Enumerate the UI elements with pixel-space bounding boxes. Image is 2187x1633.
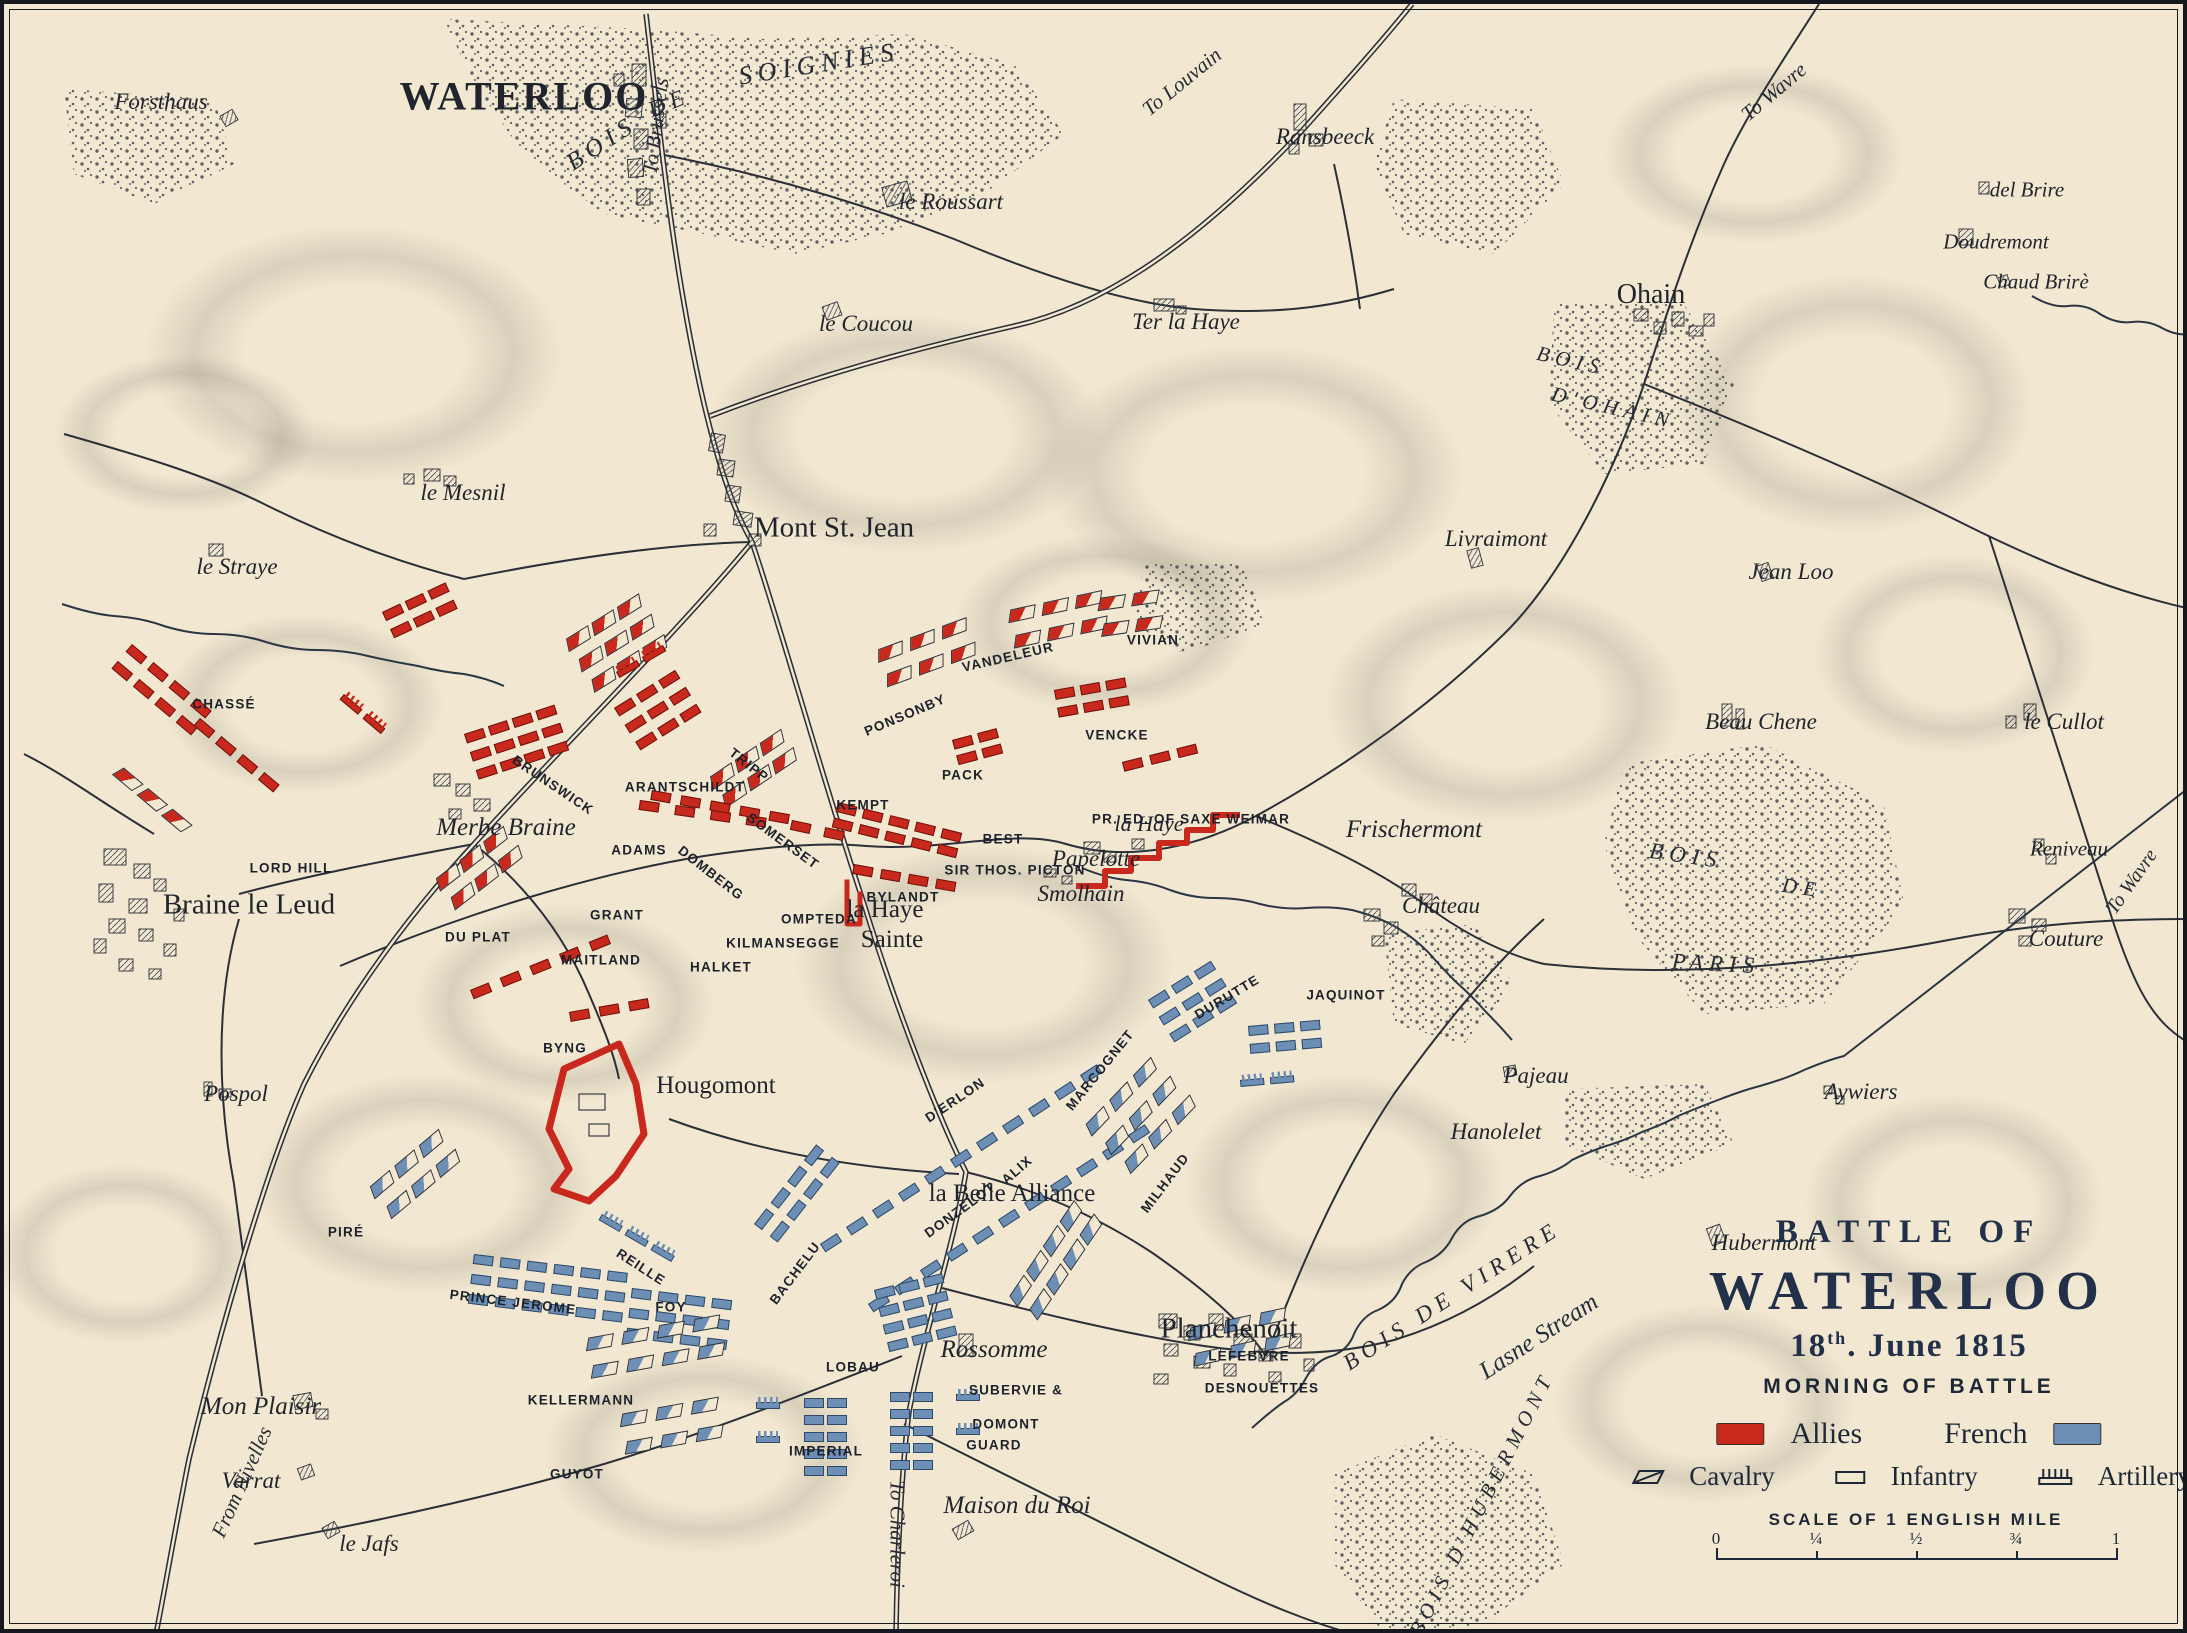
cavalry-icon: [1627, 1466, 1667, 1488]
allied-corps-label-sir-thos-picton: SIR THOS. PICTON: [944, 863, 1085, 878]
allies-color-swatch: [1717, 1423, 1765, 1445]
french-inf-unit: [804, 1398, 824, 1408]
french-corps-label-domont: DOMONT: [972, 1417, 1039, 1432]
french-inf-unit: [913, 1409, 933, 1419]
allied-corps-label-vencke: VENCKE: [1085, 728, 1148, 743]
allied-corps-label-kilmansegge: KILMANSEGGE: [726, 936, 840, 951]
place-label-maison-du-roi: Maison du Roi: [943, 1492, 1090, 1520]
allied-corps-label-maitland: MAITLAND: [561, 953, 641, 968]
scale-line: 0¼½¾1: [1716, 1536, 2116, 1566]
french-corps-label-imperial: IMPERIAL: [789, 1444, 863, 1459]
bois-d-hubermont-wood: [1334, 1434, 1564, 1633]
place-label-chaud-brir: Chaud Brirè: [1983, 270, 2089, 295]
map-subtitle: MORNING OF BATTLE: [1627, 1375, 2187, 1399]
french-inf-unit: [913, 1460, 933, 1470]
place-label-rossomme: Rossomme: [941, 1336, 1048, 1364]
allied-corps-label-bylandt: BYLANDT: [867, 890, 940, 905]
place-label-frischermont: Frischermont: [1346, 816, 1482, 844]
french-inf-unit: [890, 1409, 910, 1419]
french-art-unit: [756, 1402, 780, 1409]
infantry-label: Infantry: [1891, 1461, 1978, 1492]
place-label-pajeau: Pajeau: [1503, 1063, 1568, 1089]
french-corps-label-jaquinot: JAQUINOT: [1306, 988, 1385, 1003]
scale-tick-label: ¾: [2010, 1529, 2023, 1549]
title-block: BATTLE OF WATERLOO 18th. June 1815 MORNI…: [1627, 1214, 2187, 1492]
allied-corps-label-byng: BYNG: [543, 1041, 587, 1056]
place-label-le-jafs: le Jafs: [339, 1531, 398, 1557]
french-inf-unit: [827, 1432, 847, 1442]
place-label-reniveau: Reniveau: [2030, 837, 2108, 862]
scale-tick: [1716, 1548, 1718, 1560]
scale-caption: SCALE OF 1 ENGLISH MILE: [1716, 1510, 2116, 1530]
allied-corps-label-ompteda: OMPTEDA: [781, 912, 857, 927]
french-inf-unit: [890, 1392, 910, 1402]
allied-corps-label-grant: GRANT: [590, 908, 644, 923]
place-label-doudremont: Doudremont: [1943, 230, 2048, 255]
place-label-planchenoit: Planchenoit: [1161, 1313, 1298, 1346]
place-label-smolhain: Smolhain: [1038, 881, 1125, 907]
place-label-mon-plaisir: Mon Plaisir: [201, 1393, 321, 1421]
place-label-forsthaus: Forsthaus: [114, 89, 207, 115]
place-label-del-brire: del Brire: [1990, 178, 2064, 203]
place-label-le-straye: le Straye: [196, 554, 277, 580]
place-label-merbe-braine: Merbe Braine: [436, 814, 576, 842]
french-inf-unit: [913, 1443, 933, 1453]
place-label-aywiers: Aywiers: [1825, 1079, 1898, 1105]
scale-bar: SCALE OF 1 ENGLISH MILE 0¼½¾1: [1716, 1510, 2116, 1566]
place-label-couture: Couture: [2029, 926, 2104, 952]
allied-corps-label-halket: HALKET: [690, 960, 752, 975]
french-color-swatch: [2053, 1423, 2101, 1445]
place-label-hougomont: Hougomont: [656, 1072, 775, 1100]
road-label-to-charleroi: To Charleroi: [885, 1480, 910, 1588]
french-inf-unit: [804, 1415, 824, 1425]
place-label-braine-le-leud: Braine le Leud: [163, 889, 335, 922]
chaud-brire-brook: [2032, 296, 2187, 334]
place-label-ransbeeck: Ransbeeck: [1276, 124, 1374, 150]
place-label-mont-st-jean: Mont St. Jean: [754, 512, 914, 545]
hougomont-courtyard: [579, 1094, 609, 1136]
french-corps-label-subervie: SUBERVIE &: [969, 1383, 1063, 1398]
place-label-waterloo: WATERLOO: [400, 73, 649, 120]
french-inf-unit: [890, 1426, 910, 1436]
allied-corps-label-arantschildt: ARANTSCHILDT: [625, 780, 745, 795]
place-label-sainte: Sainte: [861, 926, 924, 954]
legend-sides: Allies French: [1627, 1417, 2187, 1451]
french-inf-unit: [1275, 1040, 1296, 1052]
place-label-le-roussart: le Roussart: [899, 189, 1003, 215]
cavalry-label: Cavalry: [1689, 1461, 1774, 1492]
waterloo-battle-map: BATTLE OF WATERLOO 18th. June 1815 MORNI…: [0, 0, 2187, 1633]
french-inf-unit: [827, 1398, 847, 1408]
french-inf-unit: [827, 1415, 847, 1425]
allied-corps-label-pack: PACK: [942, 768, 984, 783]
allied-corps-label-kempt: KEMPT: [836, 798, 889, 813]
french-inf-unit: [913, 1392, 933, 1402]
place-label-ter-la-haye: Ter la Haye: [1132, 309, 1240, 335]
french-inf-unit: [890, 1460, 910, 1470]
bois-de-soignies-wood: [444, 19, 1064, 254]
french-inf-unit: [890, 1443, 910, 1453]
legend-unit-types: Cavalry Infantry Artillery: [1627, 1461, 2187, 1492]
french-art-unit: [756, 1436, 780, 1443]
french-inf-unit: [804, 1432, 824, 1442]
allied-corps-label-pr-ed-of-saxe-weimar: PR. ED. OF SAXE WEIMAR: [1092, 812, 1290, 827]
french-inf-unit: [804, 1466, 824, 1476]
french-corps-label-desnouettes: DESNOUETTES: [1205, 1381, 1319, 1396]
artillery-icon: [2036, 1466, 2076, 1488]
hougomont-enclosure: [549, 1044, 644, 1201]
scale-tick: [1816, 1551, 1818, 1560]
place-label-le-cullot: le Cullot: [2024, 709, 2104, 735]
french-corps-label-lobau: LOBAU: [826, 1360, 880, 1375]
french-corps-label-guard: GUARD: [966, 1438, 1022, 1453]
allied-corps-label-adams: ADAMS: [611, 843, 667, 858]
french-inf-unit: [1300, 1020, 1321, 1032]
scale-tick-label: ¼: [1810, 1529, 1823, 1549]
place-label-pospol: Pospol: [204, 1081, 268, 1107]
scale-tick: [2016, 1551, 2018, 1560]
area-label-de: DE: [1780, 873, 1823, 903]
allied-corps-label-lord-hill: LORD HILL: [250, 861, 333, 876]
place-label-beau-chene: Beau Chene: [1705, 709, 1817, 735]
allied-corps-label-vivian: VIVIAN: [1127, 633, 1179, 648]
scale-tick-label: 1: [2112, 1529, 2121, 1549]
french-inf-unit: [913, 1426, 933, 1436]
place-label-le-coucou: le Coucou: [819, 311, 913, 337]
scale-tick: [2116, 1548, 2118, 1560]
place-label-ch-teau: Château: [1402, 893, 1480, 919]
french-inf-unit: [1250, 1042, 1271, 1054]
french-corps-label-kellermann: KELLERMANN: [528, 1393, 635, 1408]
scale-tick: [1916, 1551, 1918, 1560]
french-inf-unit: [1274, 1022, 1295, 1034]
french-corps-label-foy: FOY: [655, 1300, 686, 1315]
french-inf-unit: [827, 1466, 847, 1476]
allied-corps-label-du-plat: DU PLAT: [445, 930, 511, 945]
map-title-line1: BATTLE OF: [1627, 1214, 2187, 1251]
allied-corps-label-chass: CHASSÉ: [192, 697, 255, 712]
place-label-jean-loo: Jean Loo: [1749, 559, 1834, 585]
map-title-line2: WATERLOO: [1627, 1259, 2187, 1322]
allied-corps-label-best: BEST: [983, 832, 1024, 847]
french-inf-unit: [1248, 1024, 1269, 1036]
french-label: French: [1944, 1417, 2027, 1451]
scale-tick-label: ½: [1910, 1529, 1923, 1549]
map-date: 18th. June 1815: [1627, 1328, 2187, 1365]
place-label-livraimont: Livraimont: [1445, 526, 1547, 552]
allies-label: Allies: [1791, 1417, 1863, 1451]
french-corps-label-guyot: GUYOT: [550, 1467, 604, 1482]
infantry-icon: [1833, 1467, 1869, 1487]
area-label-paris: PARIS: [1671, 949, 1761, 980]
french-corps-label-pir: PIRÉ: [328, 1225, 364, 1240]
place-label-le-mesnil: le Mesnil: [421, 480, 506, 506]
place-label-ohain: Ohain: [1617, 279, 1685, 311]
french-inf-unit: [1301, 1038, 1322, 1050]
artillery-label: Artillery: [2098, 1461, 2187, 1492]
scale-tick-label: 0: [1712, 1529, 1721, 1549]
place-label-hanolelet: Hanolelet: [1451, 1119, 1542, 1145]
french-corps-label-lefebvre: LEFEBVRE: [1208, 1349, 1290, 1364]
